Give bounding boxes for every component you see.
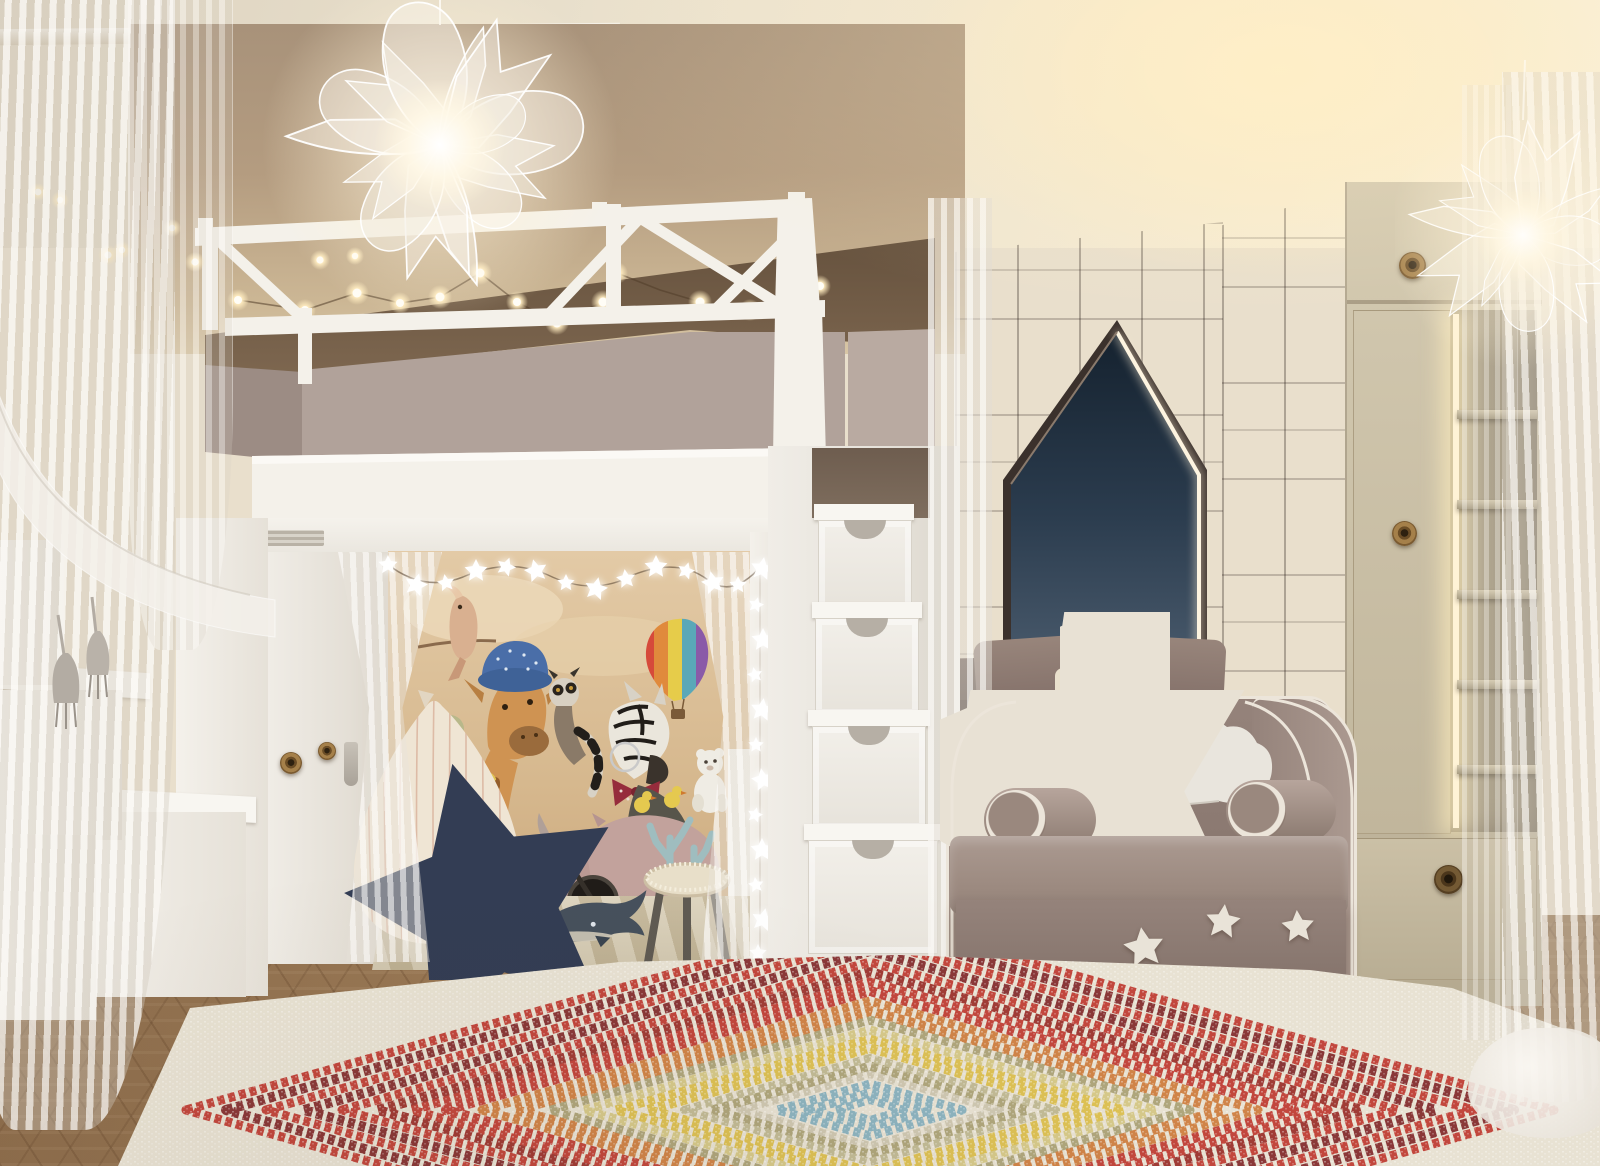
crinkle-chandelier-left (215, 0, 665, 325)
star-garland (378, 545, 782, 970)
crinkle-chandelier-right (1395, 60, 1600, 370)
stair-tread (808, 710, 930, 726)
stair-drawer (812, 726, 926, 830)
curtain-swag (0, 315, 280, 755)
kiwi-knob (1392, 521, 1417, 546)
stair-drawer (808, 840, 938, 954)
stair-tread (814, 504, 914, 520)
children-bedroom-render (0, 0, 1600, 1166)
stair-drawer (818, 520, 912, 610)
stair-drawer (815, 618, 919, 716)
wardrobe-door (1353, 310, 1451, 834)
tassels (52, 597, 109, 729)
stair-tread (812, 602, 922, 618)
kiwi-knob (1434, 865, 1463, 894)
stair-tread (804, 824, 940, 840)
bolster-cap (1228, 782, 1286, 840)
wall-knob (280, 752, 302, 774)
led-strip (1453, 314, 1459, 828)
